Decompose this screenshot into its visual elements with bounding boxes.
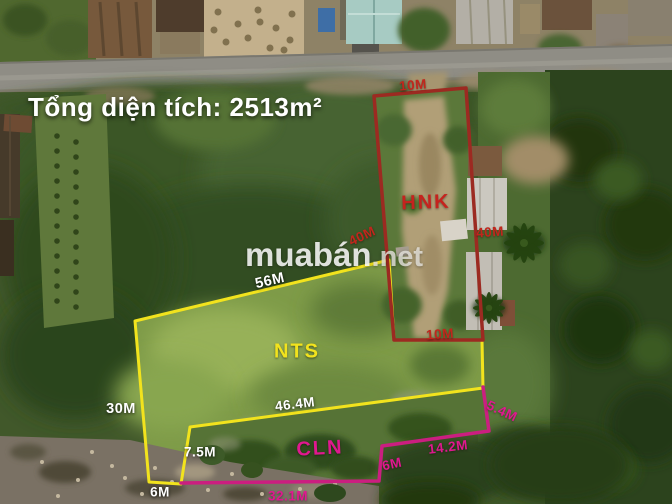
cln-left-measurement: 7.5M <box>184 445 216 460</box>
nts-left-measurement: 30M <box>106 401 136 417</box>
nts-bottom-left-measurement: 6M <box>150 485 170 500</box>
aerial-land-listing: muabán.net Tổng diện tích: 2513m² 10M HN… <box>0 0 672 504</box>
watermark: muabán.net <box>245 236 423 274</box>
hnk-bottom-measurement: 10M <box>426 326 455 343</box>
total-area-title: Tổng diện tích: 2513m² <box>28 92 322 123</box>
hnk-top-measurement: 10M <box>399 76 428 93</box>
watermark-suffix: .net <box>372 241 424 273</box>
cln-plot-label: CLN <box>296 436 344 461</box>
small-white-building <box>440 219 468 242</box>
hnk-plot-label: HNK <box>401 191 451 216</box>
blue-tarp <box>318 8 335 32</box>
cln-bottom-measurement: 32.1M <box>268 489 308 504</box>
nts-plot-label: NTS <box>274 341 320 364</box>
hnk-right-measurement: 40M <box>476 224 505 241</box>
